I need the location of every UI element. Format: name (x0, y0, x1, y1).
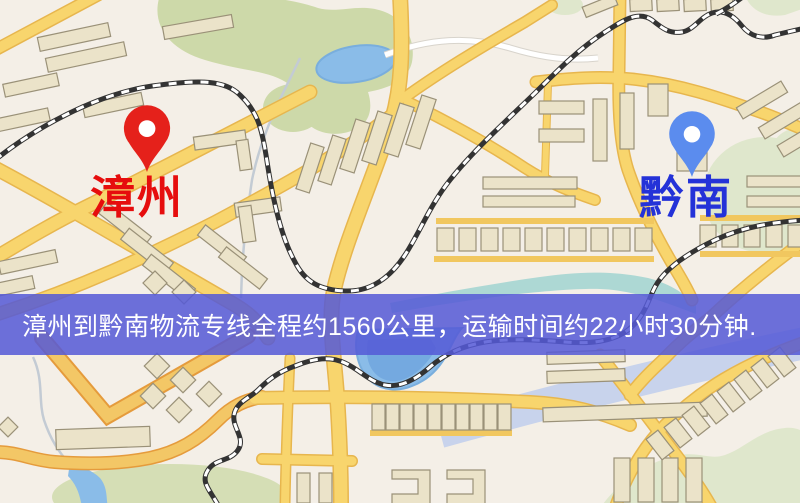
route-info-banner: 漳州到黔南物流专线全程约1560公里，运输时间约22小时30分钟. (0, 294, 800, 355)
destination-city-label: 黔南 (639, 176, 733, 221)
map-canvas (0, 0, 800, 503)
origin-city-label: 漳州 (90, 176, 184, 221)
route-info-text: 漳州到黔南物流专线全程约1560公里，运输时间约22小时30分钟. (22, 307, 757, 343)
route-map: 漳州 黔南 漳州到黔南物流专线全程约1560公里，运输时间约22小时30分钟. (0, 0, 800, 503)
